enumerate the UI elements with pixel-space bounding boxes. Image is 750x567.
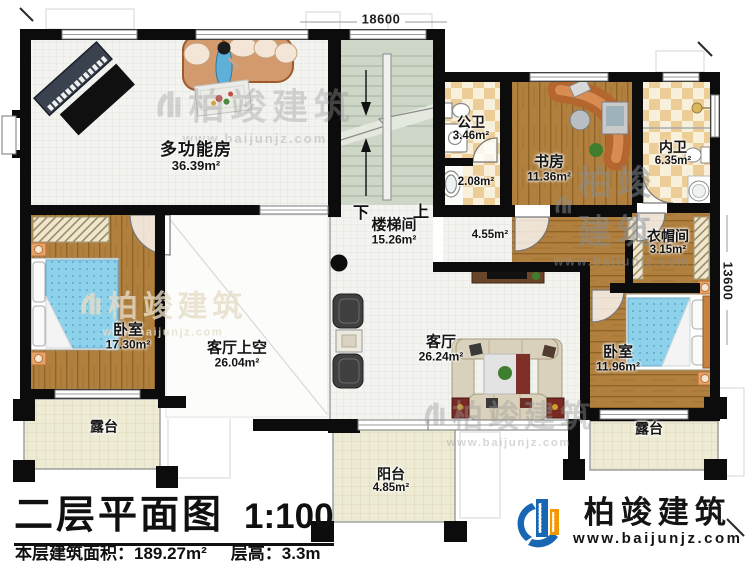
toilet-tank bbox=[701, 147, 710, 163]
living-sofa-set bbox=[452, 339, 564, 420]
room-label-bedroom-right: 卧室 11.96m² bbox=[596, 344, 640, 373]
room-label-living-room: 客厅 26.24m² bbox=[419, 334, 464, 363]
room-label-inner-bath: 内卫 6.35m² bbox=[655, 140, 691, 168]
room-label-multi-function: 多功能房 36.39m² bbox=[160, 141, 232, 173]
plan-title: 二层平面图 bbox=[14, 484, 224, 540]
floor-height-value: 3.3m bbox=[282, 544, 321, 563]
dimension-right: 13600 bbox=[721, 262, 736, 301]
plant-study bbox=[589, 143, 603, 157]
room-label-public-bath: 公卫 3.46m² bbox=[453, 115, 489, 143]
plan-info-line: 本层建筑面积：189.27m²层高：3.3m bbox=[15, 539, 321, 564]
stair-up-label: 上 bbox=[413, 198, 429, 222]
floorplan-page: 柏竣建筑 www.baijunjz.com 柏竣建筑 www.baijunjz.… bbox=[0, 0, 750, 567]
room-label-balcony: 阳台 4.85m² bbox=[373, 467, 409, 495]
rug-multi bbox=[194, 80, 251, 116]
stair-rail bbox=[383, 54, 391, 200]
floor-area-label: 本层建筑面积： bbox=[15, 544, 134, 563]
wardrobe-left bbox=[33, 217, 109, 242]
room-label-hallway: 4.55m² bbox=[472, 229, 508, 241]
room-label-bedroom-left: 卧室 17.30m² bbox=[106, 322, 151, 351]
floor-height-label: 层高： bbox=[231, 544, 282, 563]
toilet-tank bbox=[444, 103, 452, 118]
brand-logo: 柏竣建筑 www.baijunjz.com bbox=[512, 491, 742, 553]
room-label-terrace-left: 露台 bbox=[90, 419, 118, 434]
room-label-stairwell: 楼梯间 15.26m² bbox=[371, 217, 416, 246]
room-label-living-void: 客厅上空 26.04m² bbox=[207, 340, 267, 369]
room-label-terrace-right: 露台 bbox=[635, 421, 663, 436]
armchairs bbox=[333, 294, 363, 388]
room-label-cloakroom: 衣帽间 3.15m² bbox=[647, 229, 689, 257]
dimension-top: 18600 bbox=[362, 12, 401, 27]
tv bbox=[487, 272, 527, 279]
brand-logo-icon bbox=[512, 491, 568, 553]
structural-column-dot bbox=[331, 255, 348, 272]
plan-scale: 1:100 bbox=[244, 497, 334, 537]
brand-name: 柏竣建筑 bbox=[584, 497, 732, 530]
shower-head bbox=[692, 103, 702, 113]
office-chair bbox=[570, 110, 590, 130]
plant-living bbox=[498, 366, 512, 380]
plan-title-block: 二层平面图 1:100 bbox=[14, 484, 334, 546]
void-floor bbox=[165, 215, 330, 419]
brand-url: www.baijunjz.com bbox=[573, 530, 742, 547]
room-label-study: 书房 11.36m² bbox=[527, 154, 571, 183]
floor-area-value: 189.27m² bbox=[134, 544, 207, 563]
stair-down-label: 下 bbox=[353, 199, 369, 223]
room-label-wash-area: 2.08m² bbox=[458, 176, 494, 188]
